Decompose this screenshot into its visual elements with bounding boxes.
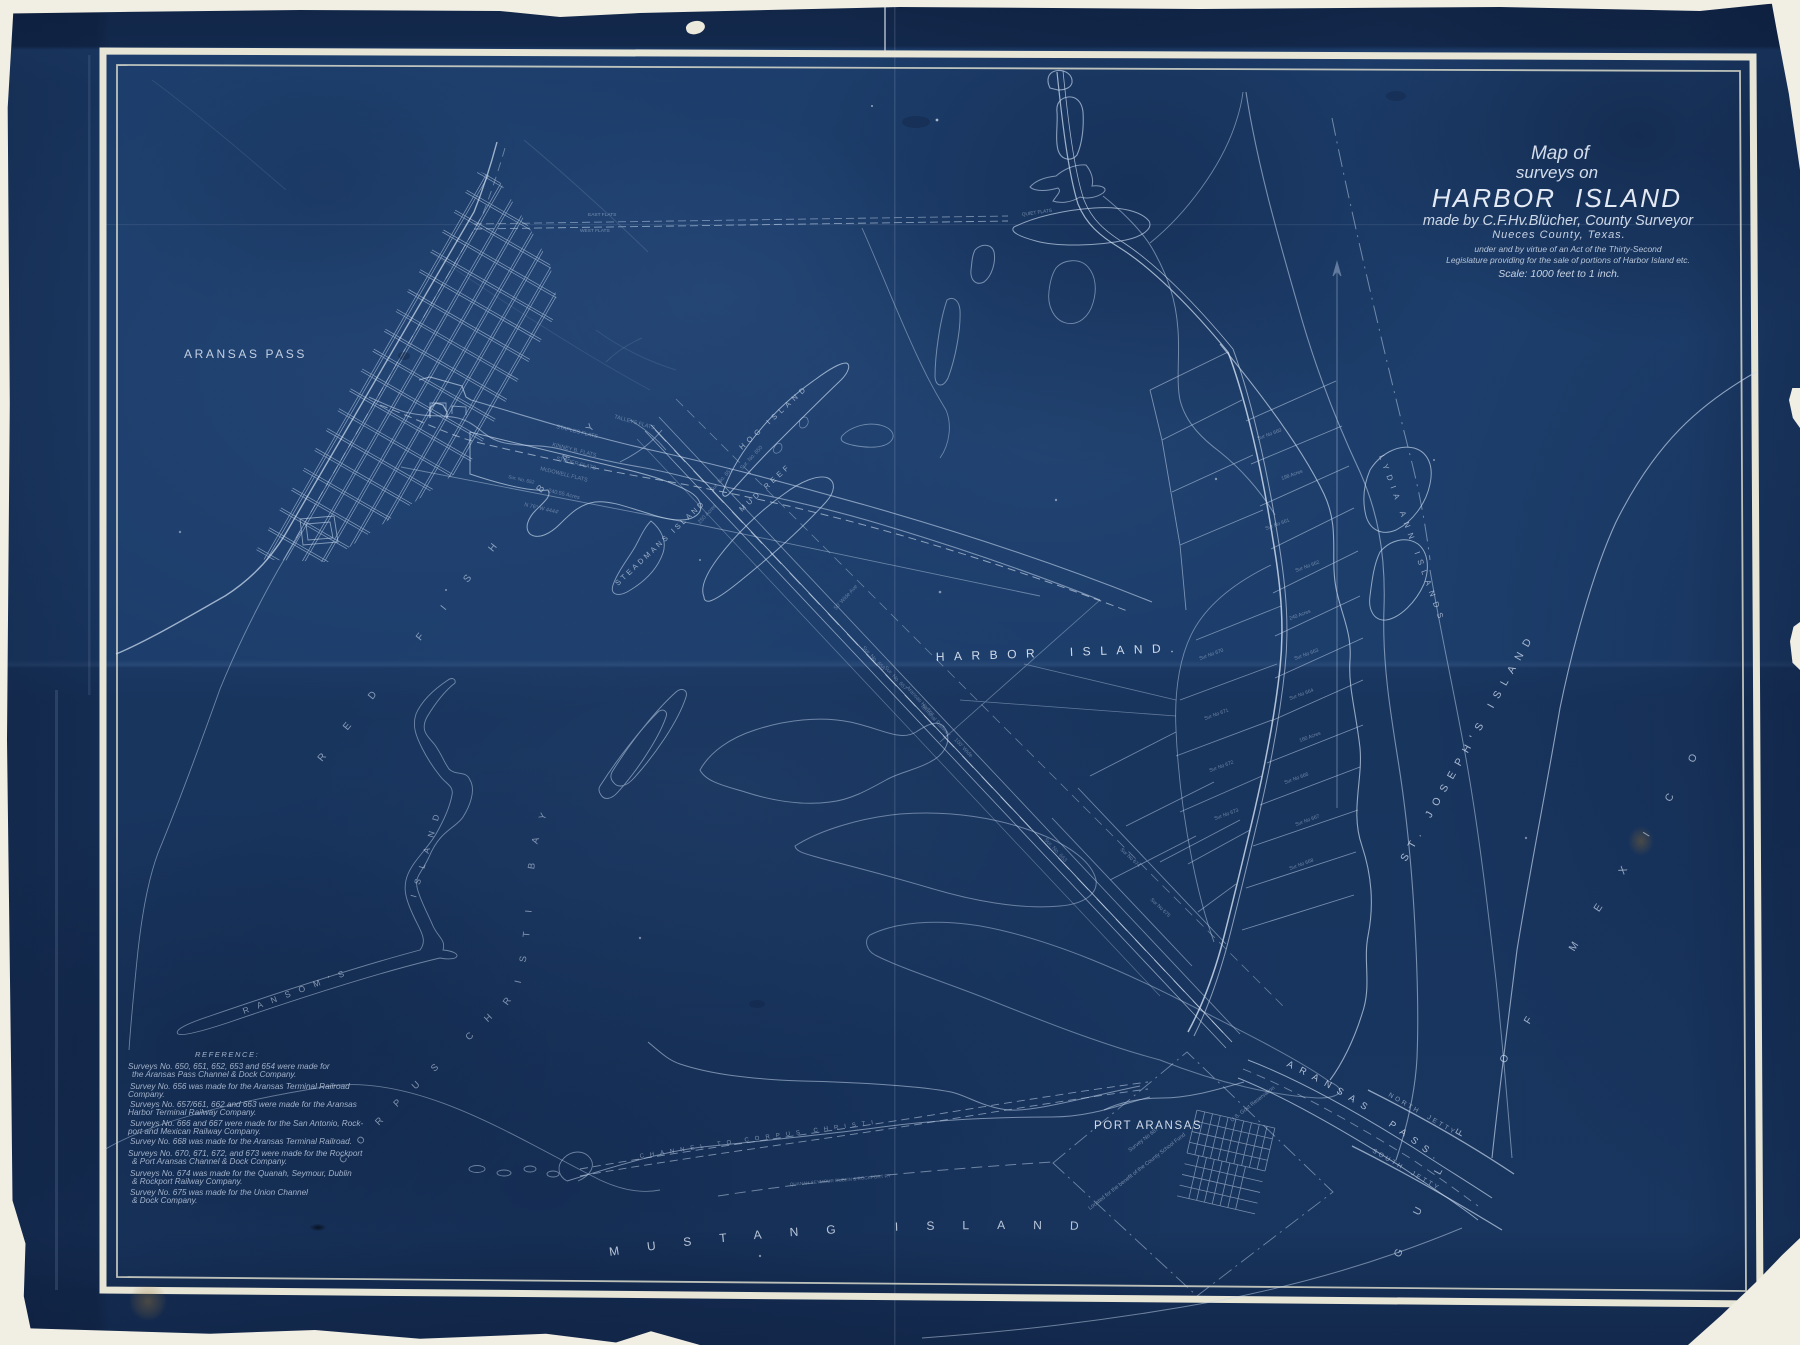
svg-text:Legislature providing for the: Legislature providing for the sale of po… (1446, 255, 1690, 265)
svg-text:Survey No. 668 was made for th: Survey No. 668 was made for the Aransas … (130, 1137, 352, 1146)
svg-text:Nueces County, Texas.: Nueces County, Texas. (1492, 229, 1626, 241)
svg-text:EAST FLATS: EAST FLATS (588, 212, 616, 218)
svg-text:HOG ISLAND: HOG ISLAND (737, 383, 810, 452)
svg-text:160 Acres: 160 Acres (1299, 730, 1322, 743)
svg-text:Sur No 666: Sur No 666 (1284, 772, 1310, 786)
svg-text:Sur No 675: Sur No 675 (1149, 897, 1172, 919)
svg-text:QUANAH SEYMOUR DUBLIN & ROCK: QUANAH SEYMOUR DUBLIN & ROCKPORT RY (790, 1173, 891, 1187)
svg-text:& Port Aransas Channel & Do: & Port Aransas Channel & Dock Company. (132, 1157, 287, 1166)
svg-text:198 Acres: 198 Acres (1281, 468, 1304, 481)
svg-text:surveys on: surveys on (1516, 163, 1598, 182)
svg-text:STEADMANS ISLAND: STEADMANS ISLAND (613, 498, 707, 587)
svg-text:50' Wide Ave: 50' Wide Ave (833, 584, 859, 611)
svg-text:Scale: 1000 feet to 1 inch.: Scale: 1000 feet to 1 inch. (1498, 268, 1619, 280)
svg-text:ST. JOSEPH'S ISLAND: ST. JOSEPH'S ISLAND (1398, 630, 1538, 864)
svg-text:REFERENCE:: REFERENCE: (195, 1050, 259, 1059)
svg-text:U.S. Govt Reservation: U.S. Govt Reservation (1230, 1085, 1277, 1123)
svg-text:PORT ARANSAS: PORT ARANSAS (1094, 1120, 1202, 1132)
svg-text:made by C.F.Hv.Blücher, County: made by C.F.Hv.Blücher, County Surveyor (1423, 213, 1694, 229)
svg-text:Sur No 670: Sur No 670 (1199, 648, 1225, 662)
svg-text:Sur. No. 651: Sur. No. 651 (709, 467, 734, 493)
svg-text:Harbor Terminal Railway Compa: Harbor Terminal Railway Company. (128, 1108, 256, 1117)
svg-text:RANSOM'S: RANSOM'S (241, 965, 354, 1015)
svg-text:& Rockport Railway Company.: & Rockport Railway Company. (132, 1177, 242, 1186)
svg-text:Sur No 673: Sur No 673 (1214, 808, 1240, 822)
svg-text:LYDIA ANN ISLANDS: LYDIA ANN ISLANDS (1377, 454, 1447, 626)
svg-text:Sur No 674: Sur No 674 (1119, 847, 1142, 869)
svg-text:ISLAND: ISLAND (408, 803, 444, 899)
svg-text:CHANNEL TO CORPUS CHRISTI: CHANNEL TO CORPUS CHRISTI (639, 1119, 879, 1160)
svg-text:Company.: Company. (128, 1090, 165, 1099)
svg-text:ARANSAS PASS: ARANSAS PASS (184, 347, 307, 361)
svg-text:Sur No 671: Sur No 671 (1204, 708, 1230, 722)
svg-text:QUIET FLATS: QUIET FLATS (1021, 208, 1052, 218)
svg-text:HARBOR ISLAND.: HARBOR ISLAND. (936, 641, 1184, 664)
svg-text:240.55 Acres: 240.55 Acres (548, 488, 581, 501)
svg-text:Sur No 660: Sur No 660 (1257, 428, 1283, 442)
svg-text:Map of: Map of (1531, 143, 1591, 164)
svg-text:Sur No 664: Sur No 664 (1289, 688, 1315, 702)
svg-text:Terminal Railway: Terminal Railway (919, 703, 952, 738)
svg-text:HARBOR ISLAND: HARBOR ISLAND (1432, 183, 1682, 213)
svg-text:TALLEYS FLATS: TALLEYS FLATS (613, 414, 655, 431)
svg-text:port and Mexican Railway C: port and Mexican Railway Company. (127, 1127, 261, 1136)
svg-text:under and by virtue of an Act: under and by virtue of an Act of the Thi… (1474, 244, 1662, 254)
svg-text:Sur No 667: Sur No 667 (1295, 814, 1321, 828)
svg-text:CORPUS CHRISTI BAY: CORPUS CHRISTI BAY (337, 794, 558, 1166)
svg-text:Sur. No. 656: Sur. No. 656 (861, 645, 886, 671)
svg-text:Sur. No. 652: Sur. No. 652 (508, 474, 536, 486)
svg-text:MUSTANG ISLAND: MUSTANG ISLAND (608, 1218, 1106, 1259)
svg-text:WEST FLATS: WEST FLATS (580, 228, 610, 234)
svg-text:Sur No 661: Sur No 661 (1265, 518, 1291, 532)
svg-text:Sur No 672: Sur No 672 (1209, 760, 1235, 774)
svg-text:& Dock Company.: & Dock Company. (132, 1196, 197, 1205)
svg-text:the Aransas Pass Channel & Doc: the Aransas Pass Channel & Dock Company. (132, 1070, 296, 1079)
